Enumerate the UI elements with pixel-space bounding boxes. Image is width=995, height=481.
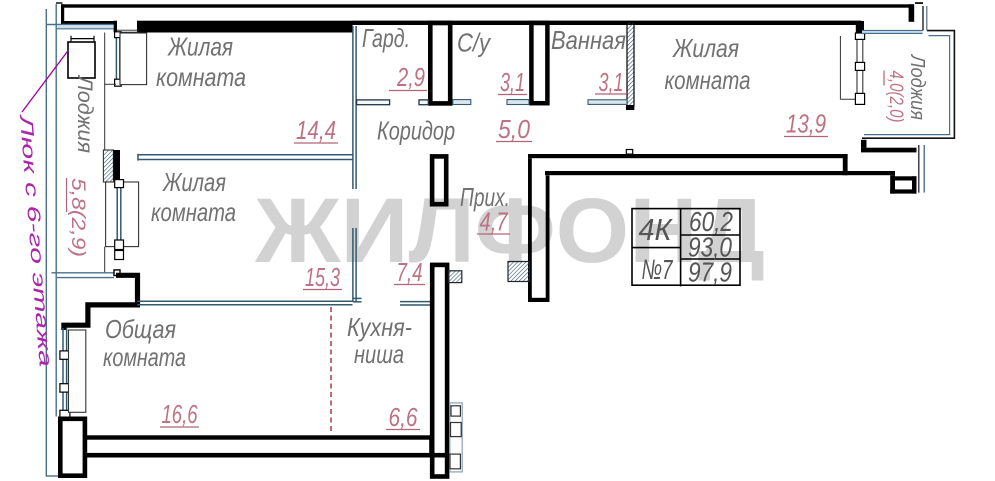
svg-text:15,3: 15,3 [305,262,340,292]
svg-text:комната: комната [151,197,236,227]
svg-text:5,8(2,9): 5,8(2,9) [67,178,88,257]
svg-text:Жилая: Жилая [161,167,226,197]
svg-text:6,6: 6,6 [389,402,418,432]
svg-text:7,4: 7,4 [397,257,423,287]
svg-text:комната: комната [103,342,186,372]
svg-text:4,7: 4,7 [480,207,509,237]
svg-text:Люк с 6-го этажа: Люк с 6-го этажа [16,113,56,367]
svg-text:2,9: 2,9 [396,62,425,92]
svg-text:Жилая: Жилая [166,32,233,62]
svg-text:3,1: 3,1 [599,67,624,97]
svg-text:97,9: 97,9 [688,257,732,288]
svg-text:4,0(2,0): 4,0(2,0) [885,71,906,123]
svg-text:Лоджия: Лоджия [73,74,96,153]
svg-text:Ванная: Ванная [551,25,626,55]
svg-text:Общая: Общая [105,314,176,344]
svg-text:комната: комната [156,62,246,92]
svg-text:С/у: С/у [457,28,492,58]
svg-text:4К: 4К [639,212,674,247]
svg-text:комната: комната [665,65,751,95]
svg-text:Жилая: Жилая [671,33,739,63]
svg-text:13,9: 13,9 [786,109,826,139]
svg-text:Лоджия: Лоджия [906,53,928,120]
svg-text:5,0: 5,0 [498,114,530,144]
svg-text:Кухня-: Кухня- [347,312,412,342]
svg-text:16,6: 16,6 [162,399,198,429]
svg-text:Коридор: Коридор [377,116,455,146]
svg-text:№7: №7 [642,254,674,285]
svg-text:3,1: 3,1 [500,67,525,97]
svg-text:Гард.: Гард. [362,23,410,53]
svg-text:ниша: ниша [354,339,404,369]
svg-text:14,4: 14,4 [296,115,336,145]
